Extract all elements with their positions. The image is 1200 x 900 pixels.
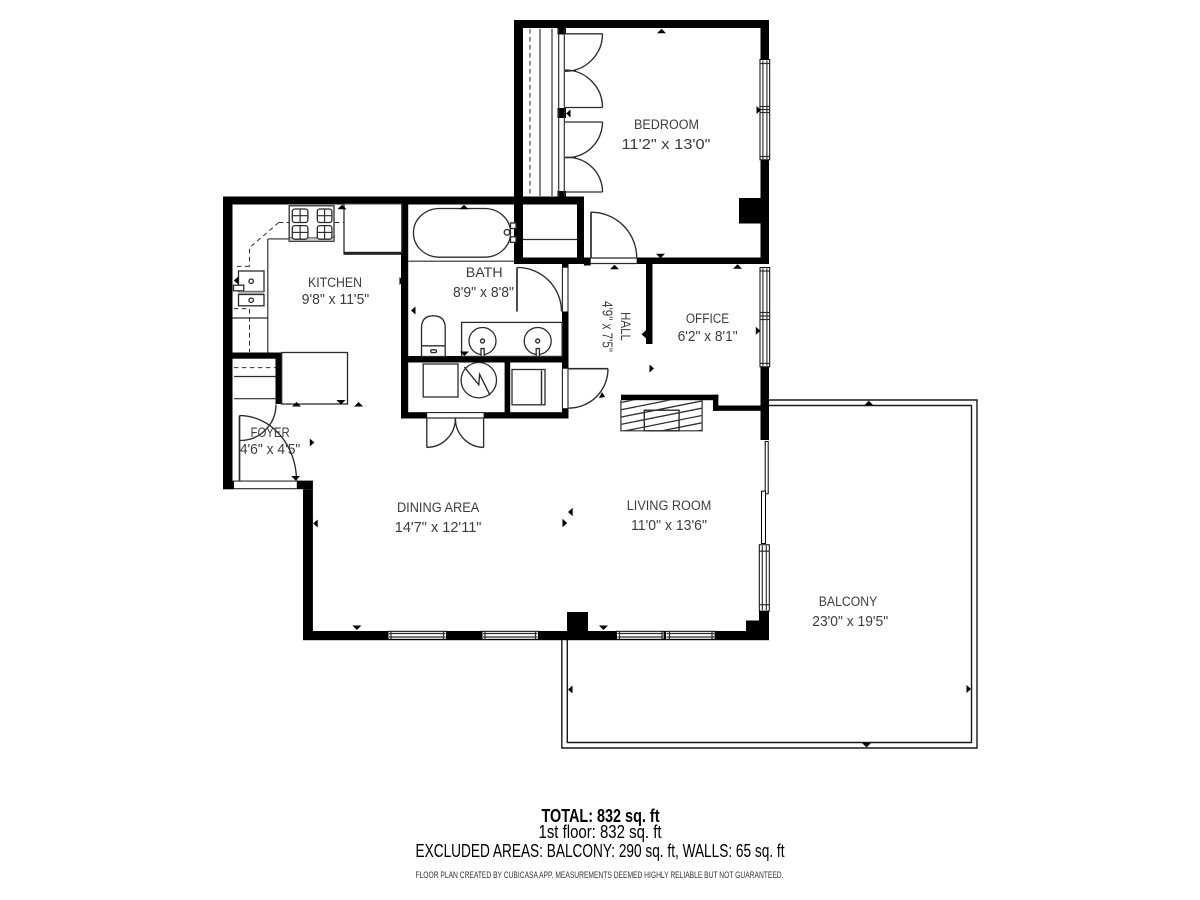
svg-text:LIVING ROOM: LIVING ROOM	[627, 498, 712, 513]
svg-text:BATH: BATH	[466, 265, 503, 280]
svg-text:HALL: HALL	[618, 312, 633, 341]
svg-text:14'7" x 12'11": 14'7" x 12'11"	[395, 519, 482, 536]
svg-text:OFFICE: OFFICE	[686, 311, 729, 326]
svg-text:1st floor: 832 sq. ft: 1st floor: 832 sq. ft	[539, 822, 662, 842]
svg-text:BALCONY: BALCONY	[819, 594, 878, 609]
svg-text:FLOOR PLAN CREATED BY CUBICASA: FLOOR PLAN CREATED BY CUBICASA APP. MEAS…	[416, 870, 784, 881]
svg-text:BEDROOM: BEDROOM	[634, 117, 699, 132]
svg-text:9'8" x 11'5": 9'8" x 11'5"	[302, 291, 370, 308]
svg-text:EXCLUDED AREAS: BALCONY: 290 s: EXCLUDED AREAS: BALCONY: 290 sq. ft, WAL…	[416, 841, 785, 861]
svg-text:DINING AREA: DINING AREA	[397, 500, 479, 515]
svg-text:KITCHEN: KITCHEN	[308, 275, 362, 290]
svg-text:4'6" x 4'5": 4'6" x 4'5"	[240, 441, 301, 458]
svg-text:11'2" x 13'0": 11'2" x 13'0"	[622, 136, 711, 153]
svg-text:4'9" x 7'5": 4'9" x 7'5"	[599, 301, 616, 352]
svg-text:FOYER: FOYER	[251, 425, 290, 440]
svg-text:11'0" x 13'6": 11'0" x 13'6"	[631, 517, 707, 534]
svg-text:6'2" x 8'1": 6'2" x 8'1"	[678, 328, 738, 345]
svg-text:23'0" x 19'5": 23'0" x 19'5"	[812, 613, 888, 630]
svg-text:8'9" x 8'8": 8'9" x 8'8"	[453, 284, 514, 301]
